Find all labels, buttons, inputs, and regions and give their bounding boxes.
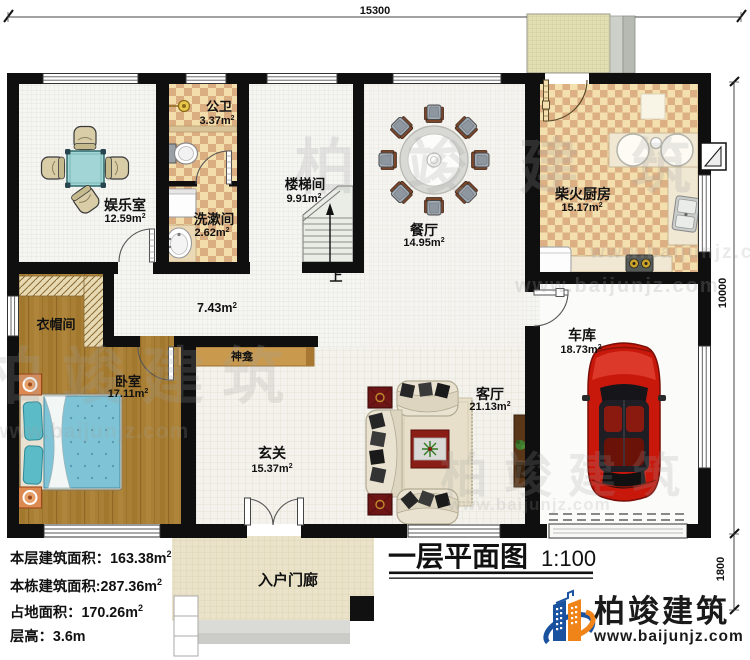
svg-text:9.91m2: 9.91m2 [286,193,321,205]
svg-text:柏竣建筑: 柏竣建筑 [594,594,730,629]
svg-text:占地面积：170.26m2: 占地面积：170.26m2 [10,603,143,621]
svg-text:客厅: 客厅 [475,386,504,402]
svg-text:柏竣建筑: 柏竣建筑 [0,343,302,412]
svg-text:本层建筑面积：163.38m2: 本层建筑面积：163.38m2 [10,549,172,567]
svg-text:衣帽间: 衣帽间 [36,317,75,332]
svg-text:15.17m2: 15.17m2 [561,202,602,214]
svg-text:www.baijunjz.com: www.baijunjz.com [0,420,189,443]
svg-text:上: 上 [329,269,342,284]
svg-text:餐厅: 餐厅 [409,222,438,238]
svg-text:7.43m2: 7.43m2 [197,301,237,315]
svg-text:层高：3.6m: 层高：3.6m [10,627,85,645]
svg-text:楼梯间: 楼梯间 [285,176,326,192]
svg-text:www.baijunjz.com: www.baijunjz.com [593,628,744,645]
svg-text:14.95m2: 14.95m2 [403,237,444,249]
svg-text:21.13m2: 21.13m2 [469,401,510,413]
svg-text:柴火厨房: 柴火厨房 [554,186,611,202]
svg-text:洗漱间: 洗漱间 [194,211,235,227]
svg-text:10000: 10000 [717,278,729,309]
svg-text:1800: 1800 [715,557,727,581]
svg-text:3.37m2: 3.37m2 [199,115,234,127]
svg-text:2.62m2: 2.62m2 [194,227,229,239]
svg-text:娱乐室: 娱乐室 [104,197,146,213]
svg-text:12.59m2: 12.59m2 [104,213,145,225]
svg-text:卧室: 卧室 [115,374,141,389]
svg-text:15300: 15300 [360,5,391,17]
svg-text:柏竣建筑: 柏竣建筑 [295,134,743,201]
svg-text:17.11m2: 17.11m2 [108,388,149,400]
svg-text:本栋建筑面积:287.36m2: 本栋建筑面积:287.36m2 [10,577,162,595]
svg-text:1:100: 1:100 [541,546,596,571]
svg-text:www.baijunjz.com: www.baijunjz.com [514,275,720,297]
svg-text:15.37m2: 15.37m2 [251,463,292,475]
svg-text:入户门廊: 入户门廊 [258,571,318,589]
svg-text:神龛: 神龛 [231,349,254,363]
svg-text:玄关: 玄关 [258,445,286,461]
svg-text:公卫: 公卫 [206,99,232,114]
svg-text:www.baijunjz.com: www.baijunjz.com [447,495,611,514]
svg-text:一层平面图: 一层平面图 [388,541,528,572]
svg-text:www.baijunjz.com: www.baijunjz.com [589,242,750,263]
svg-text:车库: 车库 [568,327,596,343]
svg-text:18.73m2: 18.73m2 [560,344,601,356]
